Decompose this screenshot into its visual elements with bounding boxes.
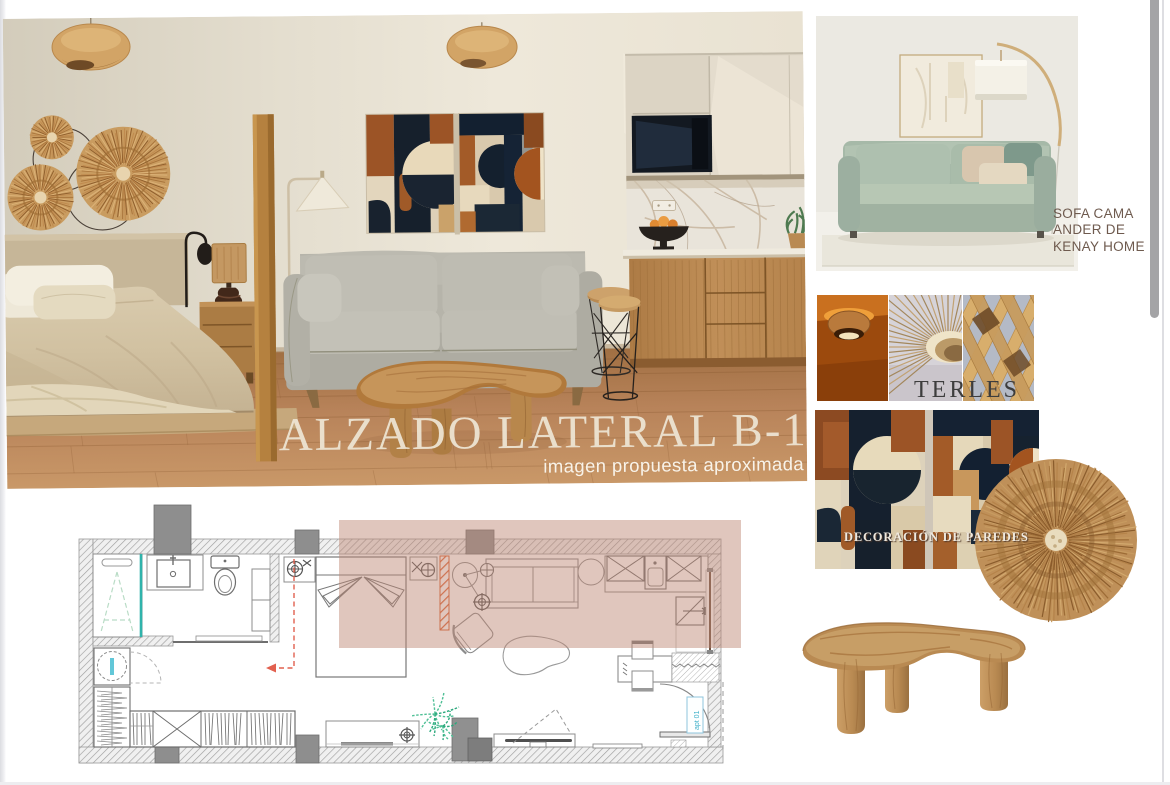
svg-text:ALZADO LATERAL B-1: ALZADO LATERAL B-1: [279, 404, 807, 461]
svg-text:imagen propuesta aproximada: imagen propuesta aproximada: [543, 453, 804, 477]
svg-text:apt 01: apt 01: [694, 710, 701, 730]
svg-text:TERLES: TERLES: [914, 377, 1020, 401]
